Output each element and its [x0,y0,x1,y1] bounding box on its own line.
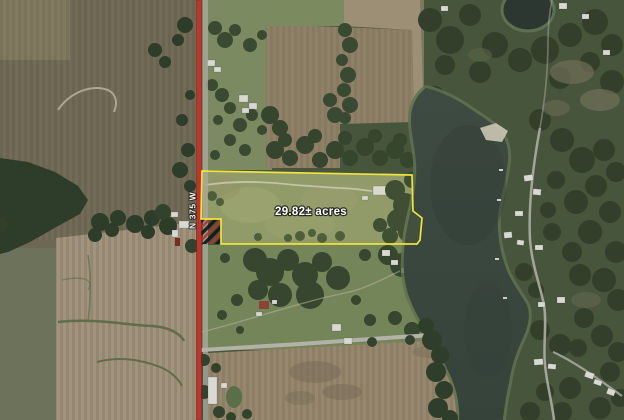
farm-pond [226,386,242,408]
small-pond [502,0,554,31]
map-canvas: 29.82± acres N 375 W [0,0,624,420]
white-barn [208,377,217,404]
acreage-label: 29.82± acres [275,206,347,218]
red-roof-house [259,301,269,309]
west-farmland [0,0,202,420]
road-name-label: N 375 W [188,191,198,229]
satellite-map: 29.82± acres N 375 W [0,0,624,420]
